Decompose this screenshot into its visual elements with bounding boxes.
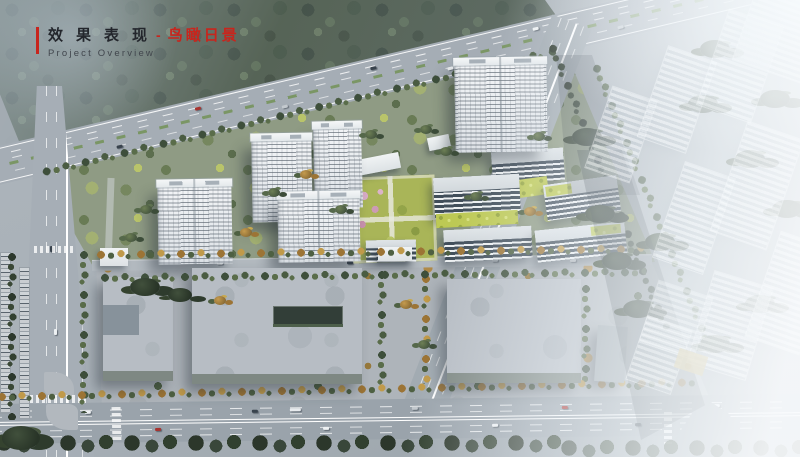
- tree-clump: [524, 207, 536, 216]
- truck: [290, 408, 301, 411]
- car: [570, 259, 576, 262]
- tree-clump: [300, 170, 312, 179]
- car: [492, 424, 498, 427]
- tree-clump: [168, 288, 192, 302]
- tree-clump: [418, 340, 430, 349]
- tree-clump: [2, 426, 40, 450]
- tree-clump: [140, 205, 152, 214]
- car: [347, 261, 353, 264]
- tree-band-bottom: [0, 431, 570, 457]
- car: [195, 106, 202, 110]
- title-line: 效果表现 - 鸟瞰日景: [48, 24, 240, 45]
- tree-band-bottom: [555, 436, 800, 457]
- tree-clump: [125, 233, 137, 242]
- tree-clump: [268, 188, 280, 197]
- title-text-column: 效果表现 - 鸟瞰日景 Project Overview: [48, 24, 240, 59]
- car: [370, 66, 377, 70]
- tree-clump: [400, 300, 412, 309]
- page-title: 效果表现: [48, 24, 160, 45]
- tree-row-plaza: [419, 272, 432, 384]
- title-accent-bar: [36, 27, 39, 54]
- car: [532, 27, 539, 31]
- car: [617, 25, 624, 29]
- building-side-face: [192, 374, 362, 384]
- car: [54, 329, 57, 335]
- tree-clump: [130, 278, 160, 296]
- car: [412, 407, 418, 410]
- car: [252, 410, 258, 413]
- courtyard-opening: [273, 306, 343, 327]
- commercial-building-east: [447, 279, 581, 383]
- tower-seam: [499, 57, 503, 152]
- glass-patch: [103, 305, 139, 335]
- tree-clump: [440, 147, 452, 156]
- tree-clump: [470, 192, 482, 201]
- commercial-building-center: [192, 268, 362, 384]
- tree-clump: [365, 130, 377, 139]
- crosswalk: [34, 246, 76, 253]
- aerial-render-scene: 效果表现 - 鸟瞰日景 Project Overview: [0, 0, 800, 457]
- building-side-face: [103, 371, 173, 381]
- building-side-face: [447, 373, 581, 383]
- title-dash: -: [156, 27, 161, 43]
- tree-clump: [533, 132, 545, 141]
- tree-clump: [240, 228, 252, 237]
- tree-row-plaza: [375, 268, 388, 388]
- tree-clump: [214, 296, 226, 305]
- car: [562, 406, 568, 409]
- title-highlight: 鸟瞰日景: [168, 24, 240, 45]
- title-block: 效果表现 - 鸟瞰日景 Project Overview: [36, 24, 240, 59]
- tree-clump: [760, 90, 790, 108]
- tree-clump: [335, 205, 347, 214]
- car: [323, 427, 329, 430]
- tree-clump: [420, 125, 432, 134]
- page-subtitle: Project Overview: [48, 48, 240, 59]
